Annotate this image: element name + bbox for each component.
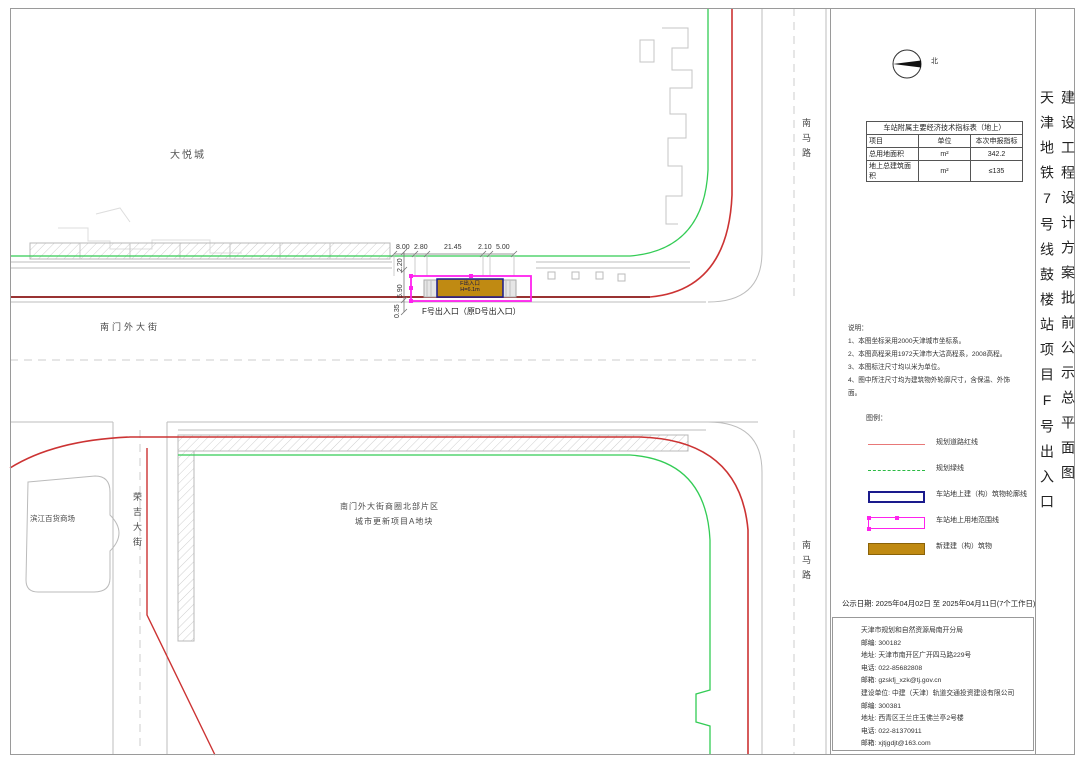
legend-item-green-line: 规划绿线: [866, 459, 1031, 485]
contact-line-agency: 天津市规划和自然资源局南开分局: [861, 625, 1033, 638]
contact-info-box: 天津市规划和自然资源局南开分局 邮编: 300182 地址: 天津市南开区广开四…: [832, 617, 1034, 751]
contact-line-addr1: 地址: 天津市南开区广开四马路229号: [861, 650, 1033, 663]
notes-line-4: 4、图中所注尺寸均为建筑物外轮廓尺寸，含保温、外饰面。: [848, 374, 1023, 400]
row2-value: ≤135: [971, 161, 1023, 182]
row1-value: 342.2: [971, 148, 1023, 161]
north-label: 北: [931, 56, 938, 66]
notes-line-2: 2、本图高程采用1972天津市大沽高程系，2008高程。: [848, 348, 1023, 361]
contact-line-email1: 邮箱: gzskfj_xzk@tj.gov.cn: [861, 675, 1033, 688]
row1-item: 总用地面积: [867, 148, 919, 161]
legend-label: 规划绿线: [936, 463, 964, 473]
north-arrow-needle: [893, 61, 921, 68]
row1-unit: m²: [919, 148, 971, 161]
notes-line-3: 3、本图标注尺寸均以米为单位。: [848, 361, 1023, 374]
indicator-col-item: 项目: [867, 135, 919, 148]
legend-item-red-line: 规划道路红线: [866, 433, 1031, 459]
panel-divider-right: [1035, 8, 1036, 755]
contact-line-zip2: 邮编: 300381: [861, 701, 1033, 714]
indicator-table: 车站附属主要经济技术指标表（地上） 项目 单位 本次申报指标 总用地面积 m² …: [866, 121, 1023, 182]
contact-line-tel2: 电话: 022-81370911: [861, 726, 1033, 739]
contact-line-builder: 建设单位: 中建（天津）轨道交通投资建设有限公司: [861, 688, 1033, 701]
title-drawing-vertical: 建设工程设计方案批前公示总平面图: [1058, 90, 1078, 490]
legend-label: 车站地上建（构）筑物轮廓线: [936, 489, 1027, 499]
north-compass: [884, 40, 954, 88]
row2-unit: m²: [919, 161, 971, 182]
table-row: 地上总建筑面积 m² ≤135: [867, 161, 1023, 182]
row2-item: 地上总建筑面积: [867, 161, 919, 182]
contact-line-zip1: 邮编: 300182: [861, 638, 1033, 651]
gold-fill-swatch-icon: [868, 543, 925, 555]
contact-line-addr2: 地址: 西青区王兰庄玉佛兰亭2号楼: [861, 713, 1033, 726]
contact-line-email2: 邮箱: xjtjgdjt@163.com: [861, 738, 1033, 751]
indicator-col-unit: 单位: [919, 135, 971, 148]
drawing-sheet: 大悦城 南门外大街 南马路 南马路 荣吉大街 滨江百货商场 南门外大街商圈北部片…: [0, 0, 1080, 764]
notes-line-1: 1、本图坐标采用2000天津城市坐标系。: [848, 335, 1023, 348]
legend-title: 图例：: [866, 413, 1031, 423]
magenta-rect-swatch-icon: [868, 517, 925, 529]
legend-item-station-outline: 车站地上建（构）筑物轮廓线: [866, 485, 1031, 511]
legend-item-new-building: 新建建（构）筑物: [866, 537, 1031, 563]
panel-divider-left: [830, 8, 831, 755]
legend-item-land-boundary: 车站地上用地范围线: [866, 511, 1031, 537]
notice-date: 公示日期: 2025年04月02日 至 2025年04月11日(7个工作日): [842, 598, 1035, 609]
green-dashed-swatch-icon: [868, 470, 925, 471]
indicator-table-title: 车站附属主要经济技术指标表（地上）: [867, 122, 1023, 135]
contact-line-tel1: 电话: 022-85682808: [861, 663, 1033, 676]
navy-rect-swatch-icon: [868, 491, 925, 503]
indicator-col-value: 本次申报指标: [971, 135, 1023, 148]
notes-block: 说明： 1、本图坐标采用2000天津城市坐标系。 2、本图高程采用1972天津市…: [848, 322, 1023, 400]
legend-label: 新建建（构）筑物: [936, 541, 992, 551]
red-line-swatch-icon: [868, 444, 925, 445]
legend-block: 图例： 规划道路红线 规划绿线 车站地上建（构）筑物轮廓线 车站地上用地范围线 …: [866, 413, 1031, 563]
notes-title: 说明：: [848, 322, 1023, 335]
legend-label: 规划道路红线: [936, 437, 978, 447]
title-project-vertical: 天津地铁7号线鼓楼站项目F号出入口: [1037, 90, 1057, 519]
legend-label: 车站地上用地范围线: [936, 515, 999, 525]
table-row: 总用地面积 m² 342.2: [867, 148, 1023, 161]
